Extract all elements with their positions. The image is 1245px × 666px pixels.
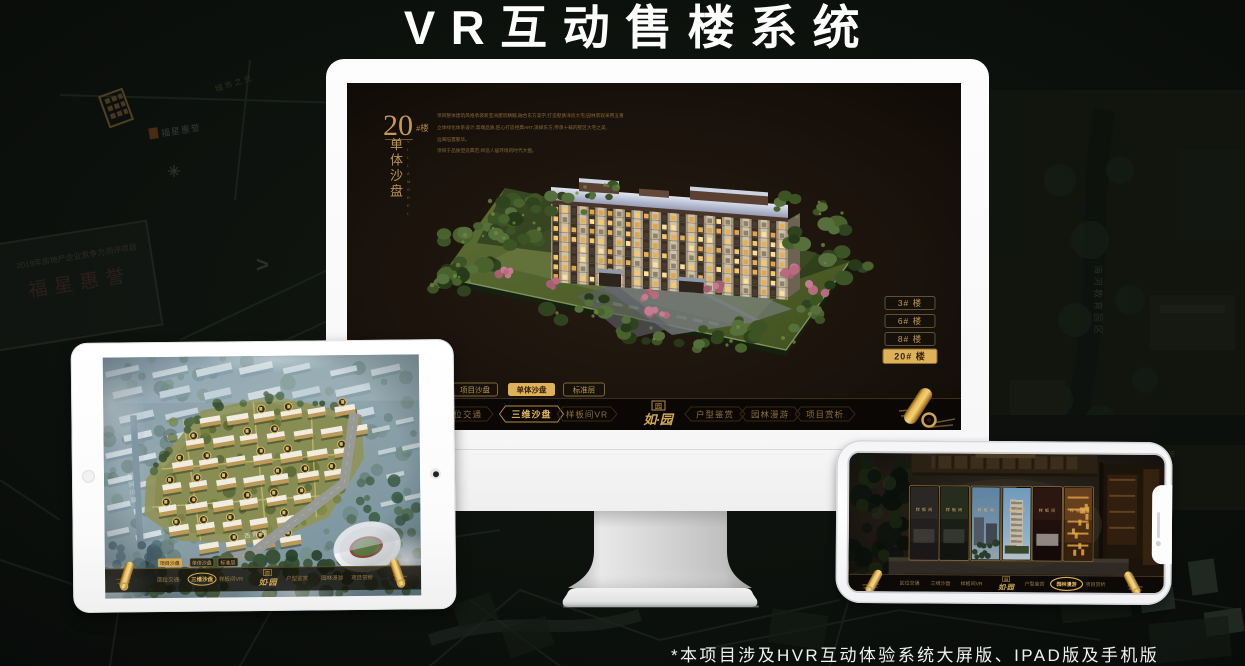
svg-text:项目于品质塑造典范,缔造人居环境的时代大盘。: 项目于品质塑造典范,缔造人居环境的时代大盘。: [437, 147, 537, 154]
svg-text:体: 体: [390, 153, 403, 168]
svg-text:标准层: 标准层: [220, 559, 235, 566]
svg-text:V: V: [407, 139, 410, 144]
svg-text:区位交通: 区位交通: [157, 575, 180, 583]
svg-text:如·园: 如·园: [998, 582, 1016, 591]
svg-text:项目赏析: 项目赏析: [351, 573, 374, 581]
svg-text:园林漫游: 园林漫游: [1056, 580, 1076, 587]
svg-text:样 板 间: 样 板 间: [1069, 506, 1086, 512]
svg-text:区位交通: 区位交通: [899, 579, 919, 586]
svg-text:单体沙盘: 单体沙盘: [192, 560, 212, 567]
svg-text:园: 园: [1004, 575, 1008, 581]
svg-text:A: A: [407, 171, 410, 176]
svg-text:样板间VR: 样板间VR: [219, 575, 243, 583]
svg-text:样 板 间: 样 板 间: [1038, 506, 1055, 512]
svg-text:标准层: 标准层: [573, 385, 596, 395]
svg-text:园: 园: [655, 403, 662, 411]
svg-text:样 板 间: 样 板 间: [915, 505, 932, 511]
svg-text:盘: 盘: [390, 184, 403, 199]
svg-text:户型鉴赏: 户型鉴赏: [1024, 580, 1044, 587]
svg-text:沙: 沙: [390, 168, 403, 183]
svg-text:20# 楼: 20# 楼: [894, 351, 926, 362]
svg-text:项目赏析: 项目赏析: [1085, 581, 1105, 588]
svg-text:6# 楼: 6# 楼: [898, 316, 922, 326]
svg-text:E: E: [407, 203, 410, 208]
svg-text:样 板 间: 样 板 间: [977, 506, 994, 512]
svg-text:3# 楼: 3# 楼: [898, 298, 922, 308]
svg-text:三维沙盘: 三维沙盘: [191, 575, 214, 583]
svg-text:O: O: [407, 187, 410, 192]
svg-text:远离喧嚣繁华。: 远离喧嚣繁华。: [437, 136, 470, 143]
svg-text:园林漫游: 园林漫游: [751, 410, 789, 420]
svg-text:如·园: 如·园: [643, 412, 674, 427]
svg-text:如·园: 如·园: [259, 578, 279, 587]
svg-text:#楼: #楼: [416, 123, 429, 133]
svg-text:样板间VR: 样板间VR: [960, 580, 982, 587]
svg-text:D: D: [407, 195, 410, 200]
svg-text:8# 楼: 8# 楼: [898, 334, 922, 344]
svg-text:三维沙盘: 三维沙盘: [930, 579, 950, 586]
svg-text:样板间VR: 样板间VR: [566, 410, 608, 420]
svg-text:样 板 间: 样 板 间: [945, 506, 962, 512]
svg-text:单体沙盘: 单体沙盘: [517, 385, 547, 395]
svg-text:三维沙盘: 三维沙盘: [511, 409, 551, 420]
svg-text:M: M: [407, 179, 410, 184]
svg-text:项目沙盘: 项目沙盘: [160, 560, 180, 567]
svg-text:项目整体建筑风格承袭新亚洲建筑精髓,融合东方美学,打造墅质洋: 项目整体建筑风格承袭新亚洲建筑精髓,融合东方美学,打造墅质洋房大宅,园林景观采用…: [437, 112, 624, 119]
svg-text:项目赏析: 项目赏析: [806, 410, 844, 420]
svg-text:海河教育园区: 海河教育园区: [1093, 265, 1104, 337]
svg-text:>: >: [256, 252, 269, 277]
svg-text:样 板 间: 样 板 间: [1008, 506, 1025, 512]
svg-text:单: 单: [390, 137, 403, 152]
svg-text:I: I: [407, 147, 408, 152]
svg-text:园林漫游: 园林漫游: [321, 574, 344, 582]
svg-text:户型鉴赏: 户型鉴赏: [286, 574, 309, 582]
svg-text:户型鉴赏: 户型鉴赏: [696, 410, 734, 420]
svg-text:立体绿化体系设计,高端品质,匠心打造经典ART,演绎东方,传: 立体绿化体系设计,高端品质,匠心打造经典ART,演绎东方,传承十载的墅区大宅之美…: [437, 124, 607, 131]
svg-text:项目沙盘: 项目沙盘: [460, 385, 490, 395]
